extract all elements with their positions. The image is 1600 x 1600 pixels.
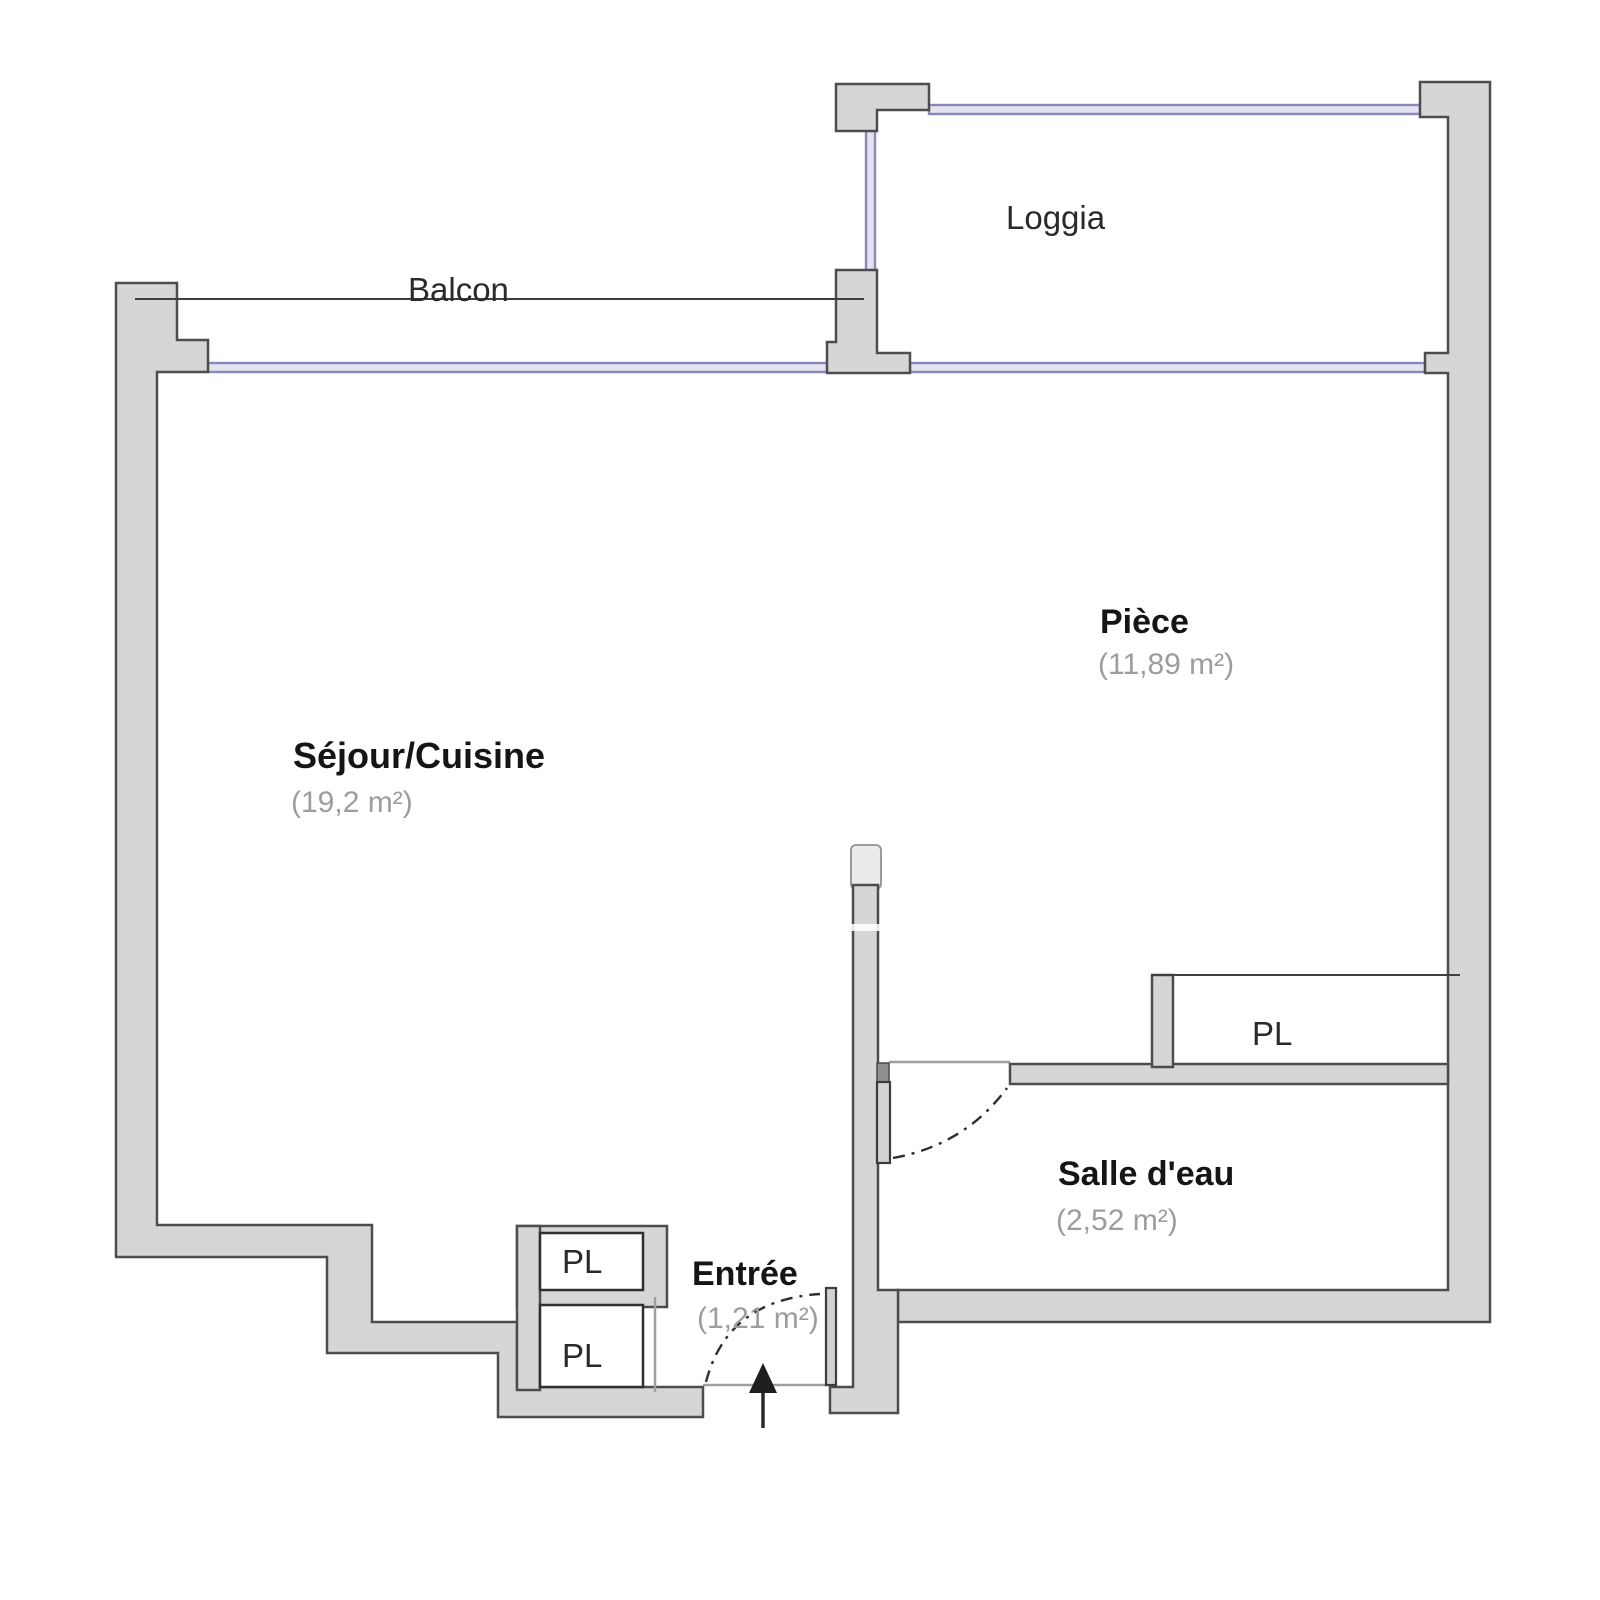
salle-deau-door-leaf (877, 1082, 890, 1163)
window-loggia-left (866, 131, 875, 272)
floor-plan: Balcon Loggia Pièce (11,89 m²) Séjour/Cu… (0, 0, 1600, 1600)
window-loggia-top (929, 105, 1420, 114)
sejour-cuisine-area: (19,2 m²) (291, 786, 413, 819)
wall-pier-top (836, 84, 929, 131)
sejour-cuisine-label: Séjour/Cuisine (293, 736, 545, 776)
window-piece-loggia (910, 363, 1425, 372)
pl-upper-label: PL (562, 1244, 602, 1280)
salle-deau-label: Salle d'eau (1058, 1156, 1234, 1193)
loggia-label: Loggia (1006, 200, 1105, 236)
wall-right (898, 82, 1490, 1322)
salle-deau-area: (2,52 m²) (1056, 1204, 1178, 1237)
piece-label: Pièce (1100, 604, 1189, 641)
floor-plan-drawing (0, 0, 1600, 1600)
piece-area: (11,89 m²) (1098, 648, 1234, 681)
wall-hall-gap (850, 924, 881, 931)
door-hinge-block (877, 1063, 889, 1083)
wall-salle-deau-top (1010, 1064, 1448, 1084)
pl-lower-label: PL (562, 1338, 602, 1374)
entree-area: (1,21 m²) (697, 1302, 857, 1335)
wall-pl-piece-left (1152, 975, 1173, 1067)
salle-deau-door-arc (893, 1088, 1007, 1158)
wall-closet-left (517, 1226, 540, 1390)
wall-hall-faded-cap (851, 845, 881, 889)
entree-label: Entrée (692, 1256, 798, 1293)
pl-piece-label: PL (1252, 1016, 1292, 1052)
wall-pier-bottom (827, 270, 910, 373)
entrance-arrow-icon (749, 1363, 777, 1393)
balcon-label: Balcon (408, 272, 509, 308)
window-sejour-balcon (208, 363, 830, 372)
